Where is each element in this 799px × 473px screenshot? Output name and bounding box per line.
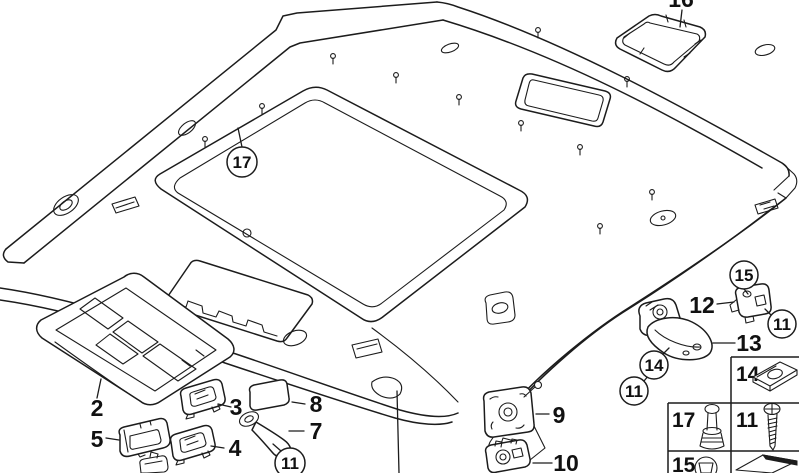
roof-rear-inner bbox=[443, 20, 762, 168]
callout-11-right[interactable]: 11 bbox=[768, 310, 796, 338]
headliner-drawing bbox=[0, 2, 797, 468]
pad-icon bbox=[736, 455, 797, 473]
callout-13-label[interactable]: 13 bbox=[736, 330, 762, 356]
callout-7-label[interactable]: 7 bbox=[310, 418, 323, 444]
callout-12-label[interactable]: 12 bbox=[689, 292, 715, 318]
headliner-parts-diagram: 2 3 4 5 7 8 9 10 12 13 16 17 11 15 11 14 bbox=[0, 0, 799, 473]
sunroof-opening bbox=[155, 87, 527, 321]
clip-pins bbox=[203, 28, 655, 234]
part-9-mount-plate bbox=[484, 382, 542, 438]
clip-nut-icon bbox=[753, 362, 797, 391]
svg-text:14[interactable]: 14 bbox=[645, 356, 664, 375]
part-8-pad bbox=[250, 380, 290, 410]
svg-text:11[interactable]: 11 bbox=[281, 454, 299, 473]
callout-15[interactable]: 15 bbox=[730, 261, 758, 289]
leader-17 bbox=[238, 128, 242, 147]
sunroof-frame-outer bbox=[155, 87, 527, 321]
screw-icon bbox=[764, 404, 780, 451]
callout-4-label[interactable]: 4 bbox=[229, 435, 242, 461]
callout-5-label[interactable]: 5 bbox=[91, 426, 104, 452]
leader-tip bbox=[397, 391, 399, 473]
table-cell-15-label[interactable]: 15 bbox=[672, 454, 696, 473]
svg-text:17[interactable]: 17 bbox=[233, 153, 252, 172]
surface-crease bbox=[372, 328, 458, 402]
table-cell-14-label[interactable]: 14 bbox=[736, 363, 760, 386]
table-cell-17-label[interactable]: 17 bbox=[672, 409, 695, 432]
parts-diagram-page: 2 3 4 5 7 8 9 10 12 13 16 17 11 15 11 14 bbox=[0, 0, 799, 473]
part-10-bracket bbox=[486, 439, 531, 473]
leader-5 bbox=[106, 438, 119, 440]
grommet-icon bbox=[695, 457, 717, 473]
part-5-lamp-frame bbox=[119, 419, 170, 458]
callout-16-label[interactable]: 16 bbox=[668, 0, 694, 12]
roof-corner-piece bbox=[770, 163, 797, 210]
callout-2-label[interactable]: 2 bbox=[91, 395, 104, 421]
callout-3-label[interactable]: 3 bbox=[230, 394, 243, 420]
part-12-bracket bbox=[730, 284, 771, 323]
roof-band-cap bbox=[3, 249, 24, 263]
callout-11-mid[interactable]: 11 bbox=[620, 377, 648, 405]
callout-17[interactable]: 17 bbox=[227, 147, 257, 177]
svg-text:15[interactable]: 15 bbox=[735, 266, 754, 285]
rear-cover-opening bbox=[516, 74, 611, 127]
svg-text:11[interactable]: 11 bbox=[625, 382, 643, 401]
roof-rear-outer bbox=[437, 2, 789, 176]
callout-8-label[interactable]: 8 bbox=[310, 391, 323, 417]
expansion-rivet-icon bbox=[700, 405, 724, 450]
callout-9-label[interactable]: 9 bbox=[553, 402, 566, 428]
svg-text:11[interactable]: 11 bbox=[773, 315, 791, 334]
leader-8 bbox=[292, 402, 305, 404]
part-4-interior-lamp bbox=[171, 426, 216, 466]
fastener-table: 14 17 11 15 bbox=[668, 357, 799, 473]
callout-11-hook[interactable]: 11 bbox=[275, 448, 305, 473]
table-cell-11-label[interactable]: 11 bbox=[736, 409, 759, 432]
part-16-cover bbox=[616, 15, 706, 72]
callout-10-label[interactable]: 10 bbox=[553, 450, 579, 473]
sunroof-frame-inner bbox=[174, 100, 506, 307]
callout-14[interactable]: 14 bbox=[640, 351, 668, 379]
part-3-interior-lamp bbox=[181, 380, 226, 420]
